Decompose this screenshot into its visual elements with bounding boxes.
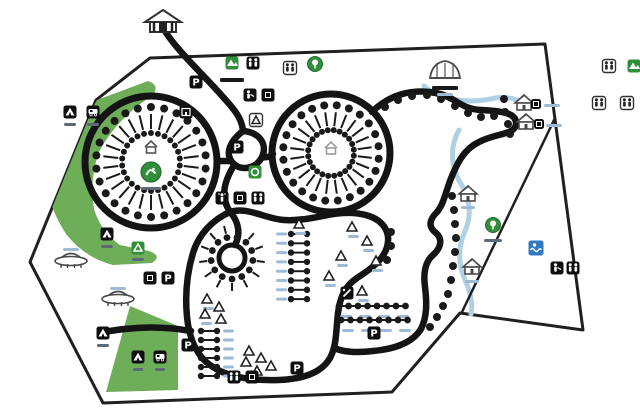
- swimming-icon: [529, 241, 544, 256]
- dishwashing-icon: [244, 89, 257, 102]
- utility-icon: [234, 192, 247, 205]
- utility-icon: [262, 89, 275, 102]
- caravan-sign-icon: [154, 351, 167, 364]
- caption-label: [133, 368, 143, 371]
- svg-text:P: P: [233, 143, 240, 154]
- tent-sign-icon: [101, 228, 114, 241]
- caption-label: [132, 258, 144, 261]
- road: [110, 328, 191, 331]
- toilets-icon: [247, 57, 260, 70]
- recycling-icon: [132, 242, 145, 255]
- caption-label: [63, 248, 79, 251]
- caption-label: [432, 86, 458, 90]
- caption-label: [141, 187, 161, 190]
- campground-map: PPPPPP: [0, 0, 640, 420]
- caption-label: [546, 124, 562, 127]
- eco-icon: [486, 218, 501, 233]
- cabin-mini-icon: [531, 99, 541, 109]
- caption-label: [64, 123, 76, 126]
- parking-icon: P: [368, 327, 381, 340]
- caption-label: [437, 93, 453, 96]
- campground-map-canvas: PPPPPP: [0, 0, 640, 420]
- caption-label: [461, 206, 475, 209]
- tent-sign-icon: [132, 351, 145, 364]
- parking-icon: P: [231, 141, 244, 154]
- caravan-sign-icon: [87, 106, 100, 119]
- svg-text:P: P: [293, 364, 300, 375]
- caption-label: [97, 344, 109, 347]
- utility-icon: [144, 272, 157, 285]
- tent-sign-icon: [97, 327, 110, 340]
- caption-label: [101, 245, 113, 248]
- restaurant-icon: [341, 287, 354, 300]
- tree-icon: [308, 57, 323, 72]
- caption-label: [465, 280, 479, 283]
- svg-text:P: P: [192, 78, 199, 89]
- shower-icon: [216, 192, 229, 205]
- toilets-outline-icon: [284, 62, 297, 75]
- info-icon: [249, 166, 262, 179]
- cabin-mini-icon: [534, 119, 544, 129]
- parking-icon: P: [291, 362, 304, 375]
- toilets-icon: [567, 262, 580, 275]
- caption-label: [110, 287, 126, 290]
- shower-icon: [551, 262, 564, 275]
- legend-icon: [621, 97, 634, 110]
- caption-label: [155, 368, 165, 371]
- caption-label: [544, 104, 560, 107]
- parking-icon: P: [190, 76, 203, 89]
- parking-icon: P: [162, 272, 175, 285]
- utility-icon: [246, 371, 259, 384]
- legend-icon: [593, 97, 606, 110]
- caption-label: [484, 239, 502, 242]
- shelter-icon: [250, 114, 263, 127]
- svg-text:P: P: [370, 329, 377, 340]
- toilets-icon: [228, 371, 241, 384]
- parking-icon: P: [182, 339, 195, 352]
- playground-sign-icon: [226, 57, 239, 70]
- building-icon: [180, 106, 193, 119]
- camp-emblem-icon: [141, 162, 161, 182]
- toilets-icon: [252, 192, 265, 205]
- caption-label: [220, 78, 244, 82]
- svg-text:P: P: [164, 274, 171, 285]
- svg-text:P: P: [184, 341, 191, 352]
- toilets-outline-icon: [603, 60, 616, 73]
- caption-label: [87, 123, 99, 126]
- tent-sign-icon: [64, 106, 77, 119]
- green-sign-icon: [628, 60, 640, 73]
